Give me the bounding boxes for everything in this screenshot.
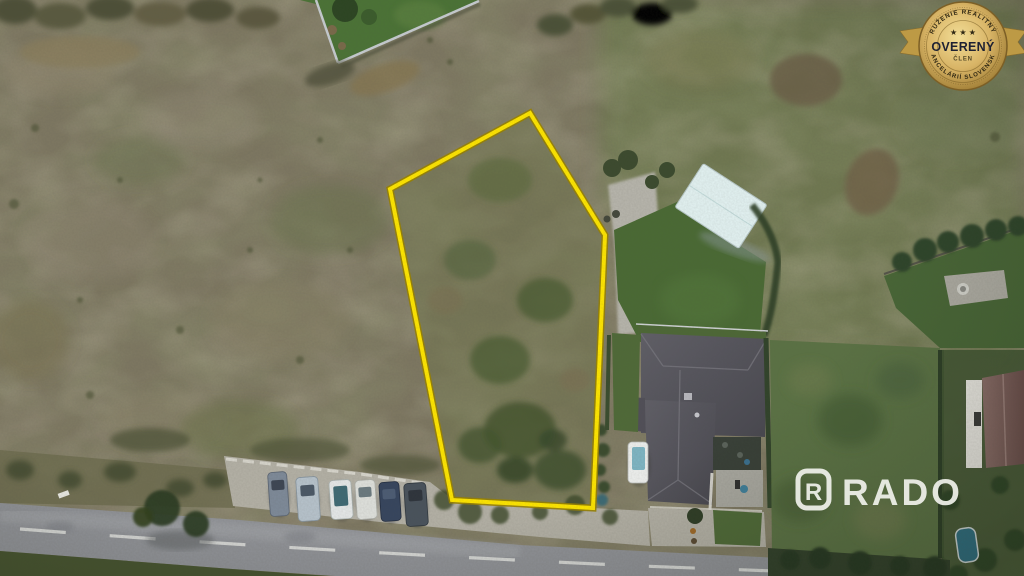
rado-brand-text: RADO: [842, 472, 963, 513]
svg-text:R: R: [805, 479, 822, 506]
aerial-photo-canvas: R RADO ZDRUŽENIE REALITNÝCH KANCELÁRIÍ S…: [0, 0, 1024, 576]
aerial-photo: R RADO ZDRUŽENIE REALITNÝCH KANCELÁRIÍ S…: [0, 0, 1024, 576]
badge-subtitle: ČLEN: [953, 56, 973, 63]
badge-title: OVERENÝ: [931, 39, 995, 54]
star-icons: ★ ★ ★: [950, 28, 976, 37]
